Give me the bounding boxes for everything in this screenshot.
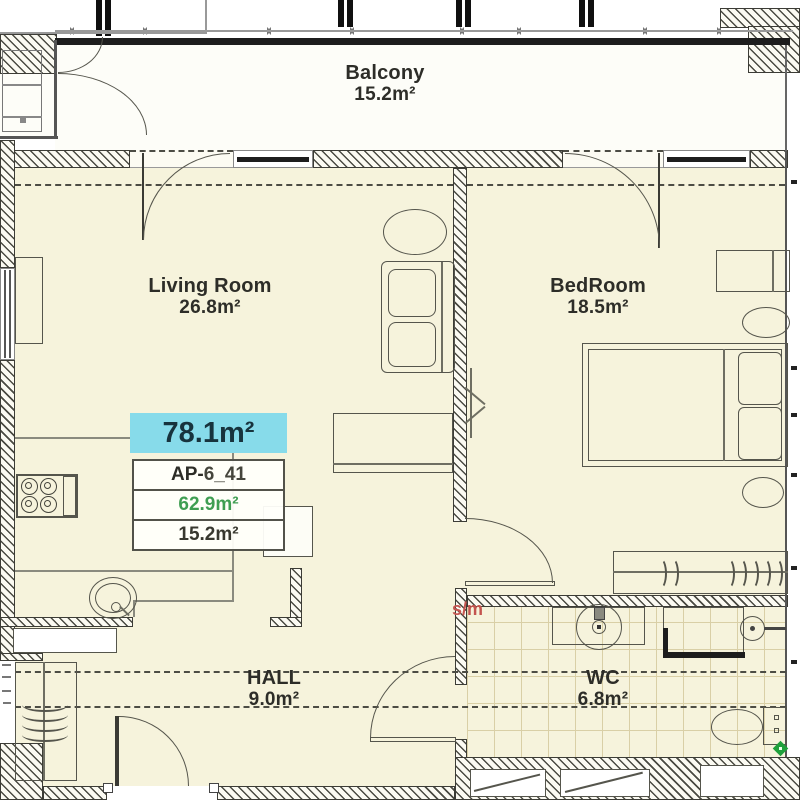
hanger-icon [770,558,783,589]
stove-burner [21,496,38,513]
stove-knobs [63,476,76,516]
pillow-icon [738,407,782,460]
room-label-living-room: Living Room 26.8m² [110,275,310,319]
left-room-wall [54,40,57,139]
toilet-tank [763,707,787,745]
table-icon [383,209,447,255]
stove-burner [40,496,57,513]
tv-stand-line [333,463,453,465]
unit-total-area: 62.9m² [134,491,283,521]
toilet-button [774,728,779,733]
wc-sink-faucet [764,627,786,630]
washing-machine-dot [597,625,601,629]
sofa-cushion [388,322,436,367]
room-area: 9.0m² [184,689,364,711]
room-name: Balcony [300,62,470,84]
door-frame [209,783,219,793]
wall-top [750,150,788,168]
window-glass-icon [667,157,746,162]
dimension-line [55,30,793,32]
room-area: 18.5m² [498,297,698,319]
total-area-highlight: 78.1m² [130,413,287,453]
unit-balcony-area: 15.2m² [134,521,283,549]
room-area: 15.2m² [300,84,470,106]
balcony-glazing-line [55,38,790,45]
stove-burner [21,478,38,495]
unit-id: AP-6_41 [134,461,283,491]
room-name: BedRoom [498,275,698,297]
unit-info-box: AP-6_41 62.9m² 15.2m² [132,459,285,551]
wall-top-right-block [720,8,800,28]
drain-marker-dot [779,747,782,750]
shower-icon [663,607,744,658]
left-room-wall [0,136,58,139]
wall-top [13,150,130,168]
column-icon [347,0,353,27]
floor-plan: Balcony 15.2m² [0,0,800,800]
wall-top-right-block [748,26,800,73]
wall-stub-horizontal [270,617,302,627]
unit-id-prefix: AP- [171,464,204,485]
room-name: HALL [184,667,364,689]
room-name: Living Room [110,275,310,297]
room-label-hall: HALL 9.0m² [184,667,364,711]
chair-line [772,250,774,292]
wall-bottom [43,786,107,800]
room-label-bedroom: BedRoom 18.5m² [498,275,698,319]
pillow-icon [738,352,782,405]
window-glass-icon [237,157,309,162]
room-area: 26.8m² [110,297,310,319]
shower-edge [663,628,668,658]
shower-edge [663,652,745,658]
balcony-right-edge [785,45,787,151]
toilet-button [774,715,779,720]
window-glass-icon [9,270,11,358]
door-frame [103,783,113,793]
wall-left [0,140,15,268]
kitchen-counter-line [15,570,233,572]
slab-line [205,0,207,33]
column-icon [465,0,471,27]
bed-line [723,349,725,461]
wall-wc-left [455,739,467,759]
wall-top [313,150,563,168]
pouf-icon [742,477,784,508]
bottom-panel [700,765,764,797]
sofa-back-line [441,262,443,372]
stove-burner [40,478,57,495]
sofa-cushion [388,269,436,317]
toilet-bowl-icon [711,709,763,745]
chair-icon [716,250,790,292]
slab-line [0,32,207,34]
room-label-balcony: Balcony 15.2m² [300,62,470,106]
ac-unit-dot [20,118,26,123]
shelf-icon [15,257,43,344]
kitchen-cabinet-icon [13,628,117,653]
wc-sink-drain [750,626,755,631]
detergent-box [594,607,605,620]
wall-tv-icon [470,368,472,438]
wall-bottom [217,786,455,800]
wall-kitchen-stub [0,653,43,661]
column-icon [338,0,344,27]
column-icon [579,0,585,27]
wall-left [0,360,15,660]
window-glass-icon [4,270,6,358]
wall-divider [453,168,467,522]
room-label-wc: WC 6.8m² [513,667,693,711]
dashed-line [15,184,453,186]
column-icon [456,0,462,27]
side-table-icon [742,307,790,338]
room-name: WC [513,667,693,689]
kitchen-counter-line [133,600,233,602]
unit-id-suffix: 6_41 [204,464,246,485]
hanger-icon [666,558,679,589]
hanger-icon [22,728,68,742]
washing-machine-label: s/m [452,599,506,620]
wall-wc-top [467,595,788,607]
column-icon [588,0,594,27]
ac-unit-line [2,84,42,86]
room-area: 6.8m² [513,689,693,711]
window-frame-left [0,268,15,360]
